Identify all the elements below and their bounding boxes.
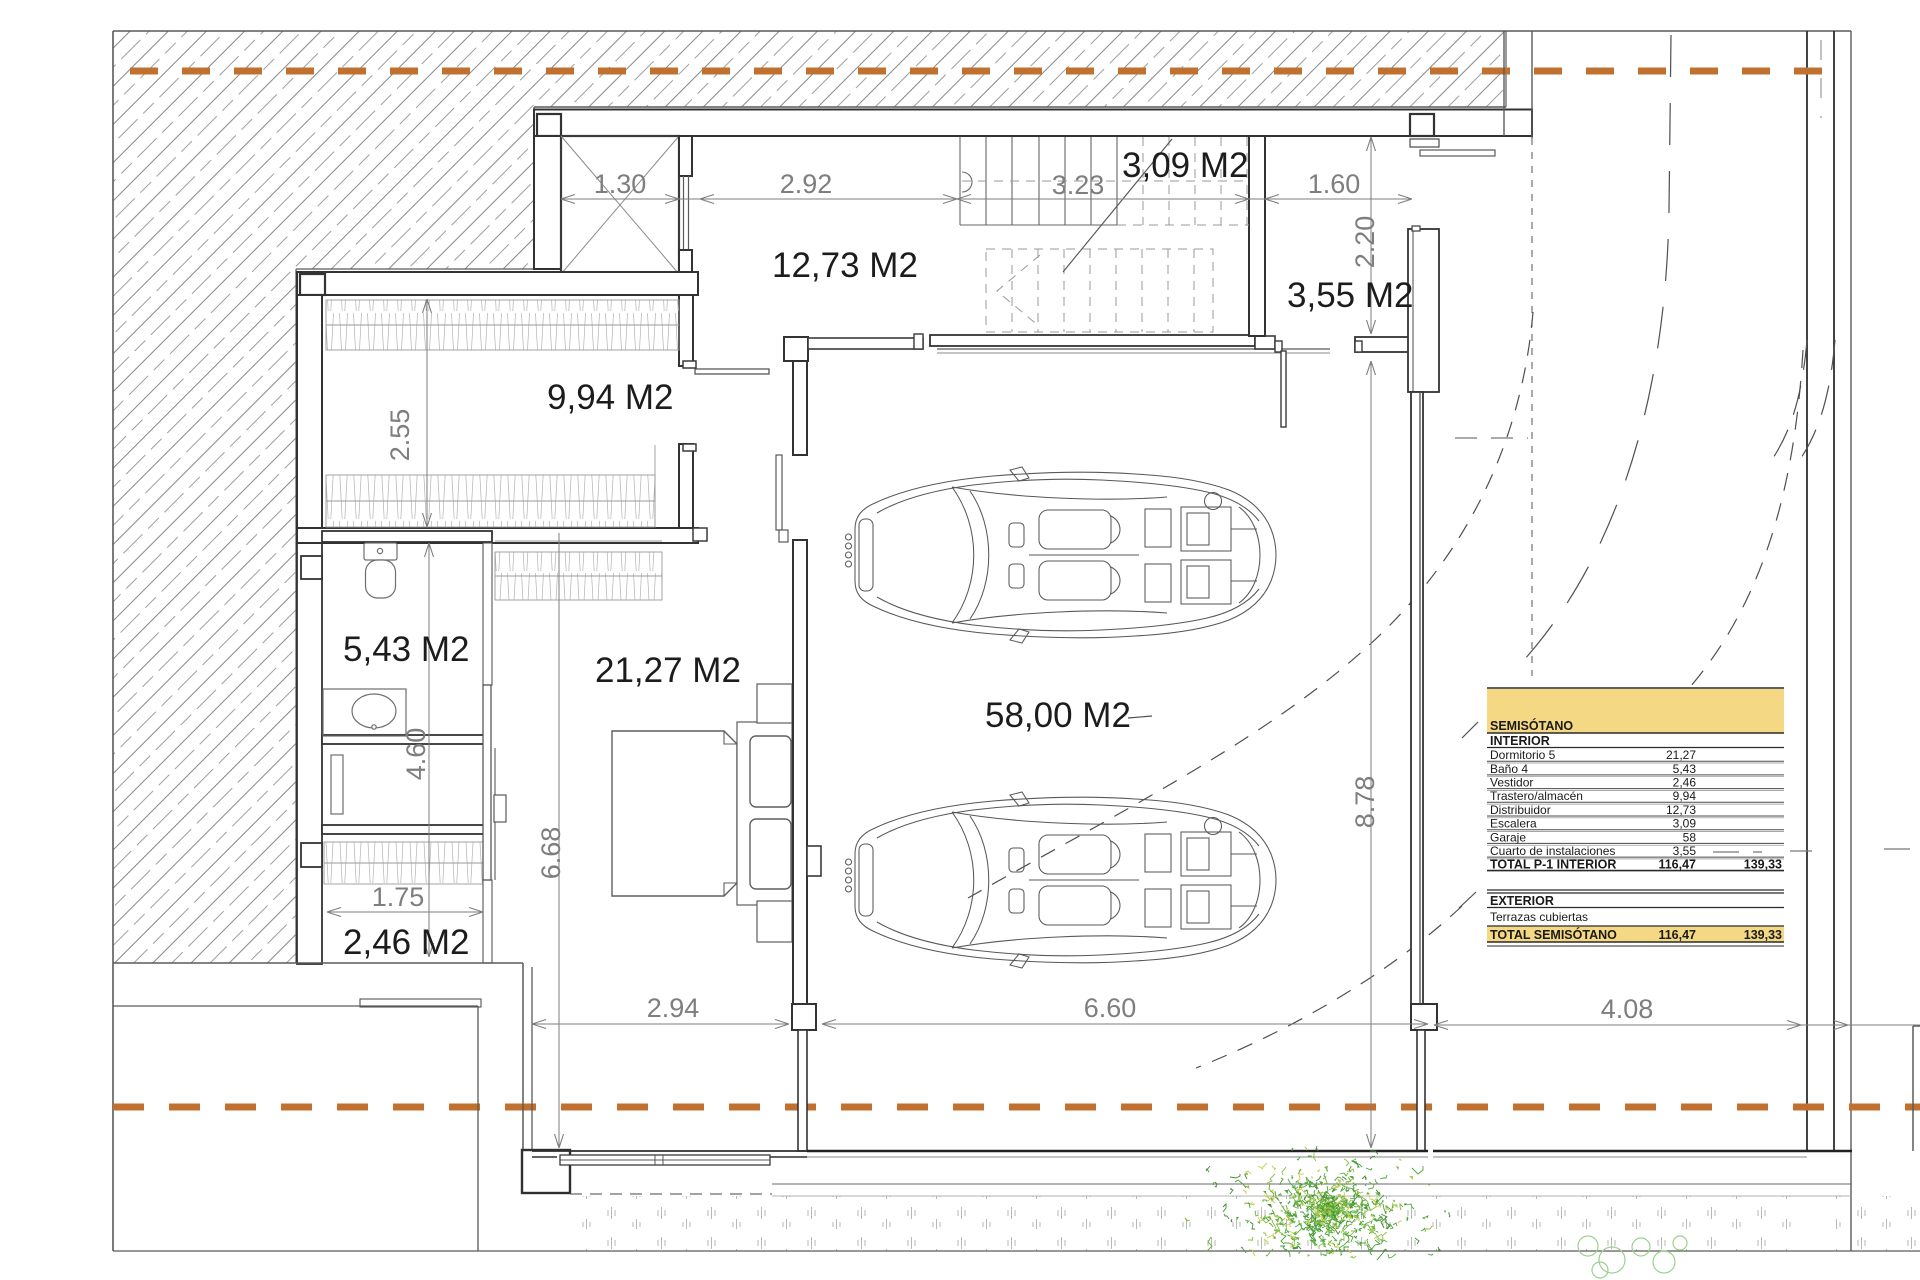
svg-text:5,43 M2: 5,43 M2 (343, 630, 469, 669)
svg-text:Vestidor: Vestidor (1490, 776, 1533, 790)
svg-text:Terrazas cubiertas: Terrazas cubiertas (1490, 910, 1588, 924)
svg-text:TOTAL SEMISÓTANO: TOTAL SEMISÓTANO (1490, 927, 1617, 942)
svg-text:9,94: 9,94 (1673, 789, 1697, 803)
svg-text:21,27: 21,27 (1666, 748, 1696, 762)
svg-text:Baño 4: Baño 4 (1490, 762, 1528, 776)
svg-text:3,09 M2: 3,09 M2 (1122, 146, 1248, 185)
svg-text:5,43: 5,43 (1673, 762, 1697, 776)
svg-text:4.08: 4.08 (1601, 994, 1654, 1024)
svg-text:6.60: 6.60 (1084, 993, 1137, 1023)
svg-text:2.92: 2.92 (780, 169, 833, 199)
svg-text:4.60: 4.60 (401, 728, 431, 781)
svg-text:TOTAL P-1 INTERIOR: TOTAL P-1 INTERIOR (1490, 858, 1616, 872)
svg-text:3,09: 3,09 (1673, 817, 1697, 831)
svg-text:116,47: 116,47 (1658, 928, 1696, 942)
svg-text:EXTERIOR: EXTERIOR (1490, 894, 1554, 908)
svg-text:2,46 M2: 2,46 M2 (343, 923, 469, 962)
svg-text:2.55: 2.55 (385, 409, 415, 462)
svg-text:12,73: 12,73 (1666, 803, 1696, 817)
svg-text:2.94: 2.94 (647, 993, 700, 1023)
svg-text:3,55 M2: 3,55 M2 (1287, 276, 1413, 315)
svg-text:12,73 M2: 12,73 M2 (772, 246, 918, 285)
svg-text:1.75: 1.75 (372, 882, 425, 912)
svg-text:2,46: 2,46 (1673, 776, 1697, 790)
svg-text:Escalera: Escalera (1490, 817, 1537, 831)
svg-text:3.23: 3.23 (1052, 170, 1105, 200)
svg-text:116,47: 116,47 (1658, 858, 1696, 872)
svg-text:1.60: 1.60 (1308, 169, 1361, 199)
svg-text:1.30: 1.30 (594, 169, 647, 199)
svg-text:Garaje: Garaje (1490, 830, 1526, 844)
svg-text:Distribuidor: Distribuidor (1490, 803, 1551, 817)
svg-text:SEMISÓTANO: SEMISÓTANO (1490, 718, 1573, 733)
svg-text:Dormitorio 5: Dormitorio 5 (1490, 748, 1556, 762)
svg-text:INTERIOR: INTERIOR (1490, 734, 1550, 748)
svg-text:58,00 M2: 58,00 M2 (985, 696, 1131, 735)
svg-text:9,94 M2: 9,94 M2 (547, 378, 673, 417)
svg-text:Trastero/almacén: Trastero/almacén (1490, 789, 1583, 803)
svg-text:139,33: 139,33 (1744, 858, 1782, 872)
svg-text:21,27 M2: 21,27 M2 (595, 651, 741, 690)
svg-text:2.20: 2.20 (1350, 216, 1380, 269)
svg-text:3,55: 3,55 (1673, 844, 1697, 858)
svg-text:6.68: 6.68 (536, 827, 566, 880)
svg-text:139,33: 139,33 (1744, 928, 1782, 942)
svg-text:Cuarto de instalaciones: Cuarto de instalaciones (1490, 844, 1615, 858)
svg-text:58: 58 (1683, 830, 1697, 844)
svg-text:8.78: 8.78 (1350, 776, 1380, 829)
